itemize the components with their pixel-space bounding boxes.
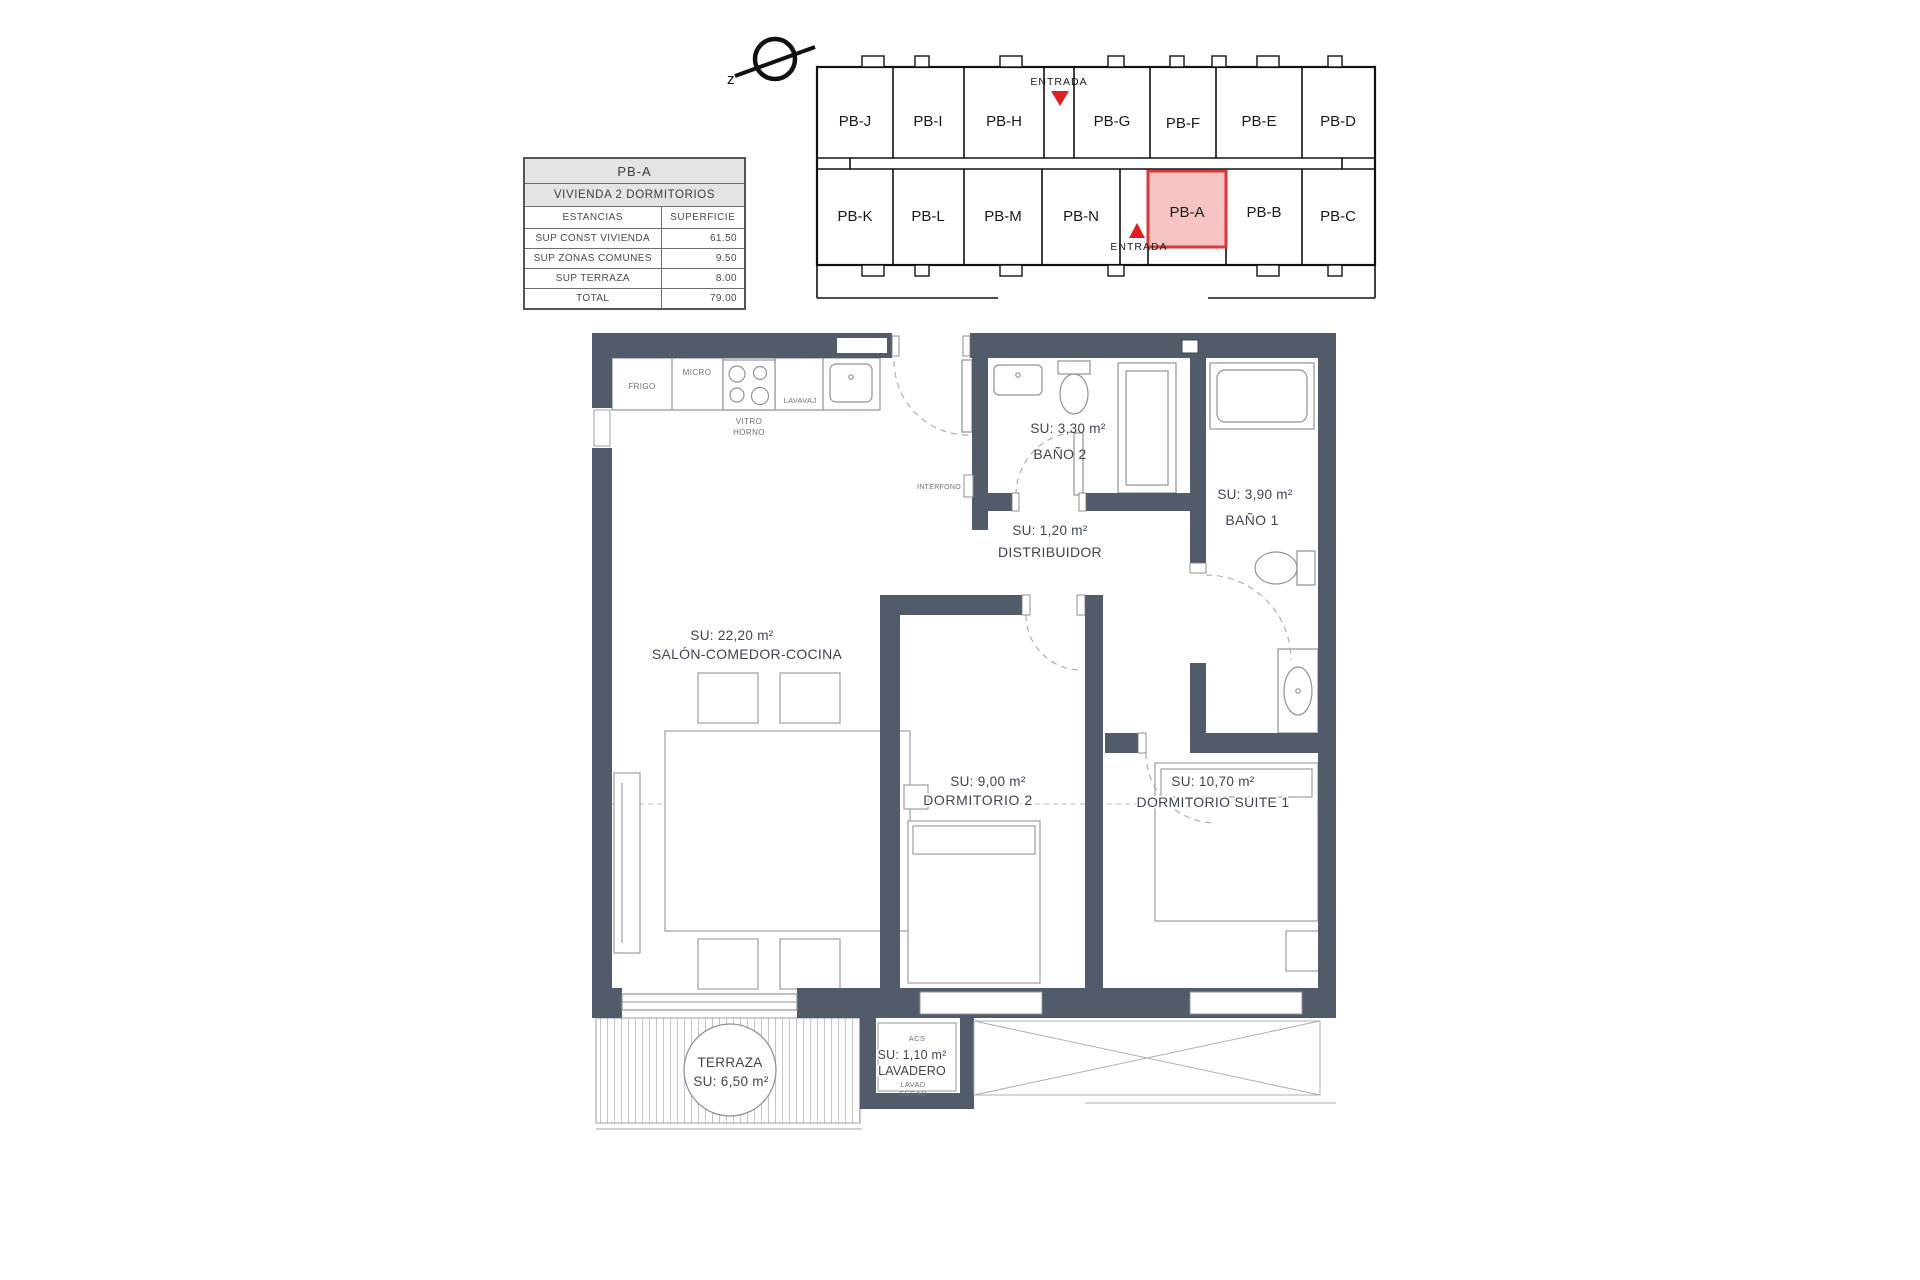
dorm2-furniture <box>904 785 1040 983</box>
dining-table <box>665 731 910 931</box>
unit-label-pb-m: PB-M <box>984 208 1022 225</box>
secad-label: SECAD <box>899 1089 927 1098</box>
col-header-superficie: SUPERFICIE <box>661 207 745 229</box>
unit-code: PB-A <box>524 158 745 184</box>
salon-area-label: SU: 22,20 m² <box>690 628 773 643</box>
unit-label-pb-j: PB-J <box>839 113 872 130</box>
terraza-name-label: TERRAZA <box>697 1055 762 1070</box>
vitro-label: VITRO <box>736 417 762 426</box>
entry-door-swing <box>894 361 968 435</box>
bano2-name-label: BAÑO 2 <box>1033 446 1086 462</box>
interfono-label: INTERFONO <box>917 484 961 491</box>
unit-label-pb-f: PB-F <box>1166 115 1200 132</box>
dorm2-area-label: SU: 9,00 m² <box>950 774 1026 789</box>
floorplan-page: z PB-A VIVIENDA 2 DORMITORIOS ESTANCIAS … <box>0 0 1920 1280</box>
unit-label-pb-e: PB-E <box>1241 113 1276 130</box>
suite-name-label: DORMITORIO SUITE 1 <box>1137 794 1290 810</box>
entrada-bottom-label: ENTRADA <box>1110 241 1167 253</box>
distribuidor-area-label: SU: 1,20 m² <box>1012 523 1088 538</box>
lavad-label: LAVAD <box>900 1080 926 1089</box>
horno-label: HORNO <box>733 428 765 437</box>
bano1-name-label: BAÑO 1 <box>1225 512 1278 528</box>
bano2-area-label: SU: 3,30 m² <box>1030 421 1106 436</box>
unit-subtitle: VIVIENDA 2 DORMITORIOS <box>524 184 745 207</box>
acs-label: ACS <box>909 1034 926 1043</box>
compass-letter: z <box>727 71 735 88</box>
micro-label: MICRO <box>683 368 712 377</box>
table-row: SUP ZONAS COMUNES 9.50 <box>524 249 745 269</box>
compass-needle <box>735 47 815 76</box>
bano2-toilet-bowl <box>1060 374 1088 414</box>
row-label: SUP CONST VIVIENDA <box>524 229 661 249</box>
unit-label-pb-g: PB-G <box>1094 113 1131 130</box>
row-value: 8.00 <box>661 269 745 289</box>
unit-label-pb-k: PB-K <box>837 208 872 225</box>
kitchen-sink <box>830 364 872 402</box>
key-plan: ENTRADA ENTRADA PB-J PB-I PB-H PB-G PB-F… <box>812 42 1392 302</box>
compass-circle <box>755 39 795 79</box>
row-value: 79.00 <box>661 289 745 310</box>
table-row: SUP TERRAZA 8.00 <box>524 269 745 289</box>
facade-notches-top <box>862 56 1342 67</box>
bano2-door-leaf <box>1074 433 1083 495</box>
salon-window <box>614 773 640 953</box>
lavadero-area-label: SU: 1,10 m² <box>878 1048 947 1062</box>
unit-label-pb-b: PB-B <box>1246 204 1281 221</box>
lavavaj-label: LAVAVAJ <box>784 396 817 405</box>
entrada-bottom-arrow-icon <box>1129 223 1145 238</box>
unit-label-pb-d: PB-D <box>1320 113 1356 130</box>
key-plan-outline <box>817 56 1375 298</box>
unit-label-pb-i: PB-I <box>913 113 942 130</box>
row-label: TOTAL <box>524 289 661 310</box>
col-header-estancias: ESTANCIAS <box>524 207 661 229</box>
bano1-toilet-bowl <box>1255 552 1297 584</box>
bano1-area-label: SU: 3,90 m² <box>1217 487 1293 502</box>
suite-area-label: SU: 10,70 m² <box>1171 774 1254 789</box>
cooktop <box>723 360 775 410</box>
bano1-toilet-tank <box>1297 551 1315 585</box>
bano2-door-swing <box>1016 432 1079 495</box>
unit-label-pb-a: PB-A <box>1169 204 1204 221</box>
lavadero-name-label: LAVADERO <box>878 1064 946 1078</box>
distribuidor-name-label: DISTRIBUIDOR <box>998 544 1102 560</box>
bano1-door-swing <box>1206 575 1291 660</box>
unit-label-pb-n: PB-N <box>1063 208 1099 225</box>
salon-name-label: SALÓN-COMEDOR-COCINA <box>652 646 843 662</box>
table-row: SUP CONST VIVIENDA 61.50 <box>524 229 745 249</box>
row-value: 9.50 <box>661 249 745 269</box>
entry-door-leaf <box>962 360 972 432</box>
dorm2-name-label: DORMITORIO 2 <box>923 792 1033 808</box>
entrada-top-arrow-icon <box>1051 91 1069 106</box>
entrada-top-label: ENTRADA <box>1030 76 1087 88</box>
interfono-box <box>964 475 973 497</box>
suite-nightstand <box>1286 931 1320 971</box>
unit-label-pb-l: PB-L <box>911 208 944 225</box>
bano1-fixtures <box>1210 363 1318 733</box>
unit-info-table: PB-A VIVIENDA 2 DORMITORIOS ESTANCIAS SU… <box>523 157 746 310</box>
terraza-area-label: SU: 6,50 m² <box>693 1074 769 1089</box>
frigo-label: FRIGO <box>628 382 655 391</box>
terraza-table <box>684 1024 776 1116</box>
row-value: 61.50 <box>661 229 745 249</box>
key-plan-apron <box>817 265 1375 298</box>
bano2-sink <box>994 365 1042 395</box>
unit-label-pb-h: PB-H <box>986 113 1022 130</box>
unit-label-pb-c: PB-C <box>1320 208 1356 225</box>
dining-set <box>665 673 910 989</box>
utility-crossed-area <box>974 1021 1336 1103</box>
row-label: SUP ZONAS COMUNES <box>524 249 661 269</box>
dorm2-door-swing <box>1026 615 1081 670</box>
facade-notches-bottom <box>862 265 1342 276</box>
floor-plan: SU: 22,20 m² SALÓN-COMEDOR-COCINA SU: 3,… <box>590 333 1345 1138</box>
terrace-sliding-door <box>622 994 797 1010</box>
table-row: TOTAL 79.00 <box>524 289 745 310</box>
row-label: SUP TERRAZA <box>524 269 661 289</box>
bano2-toilet-tank <box>1058 361 1090 374</box>
